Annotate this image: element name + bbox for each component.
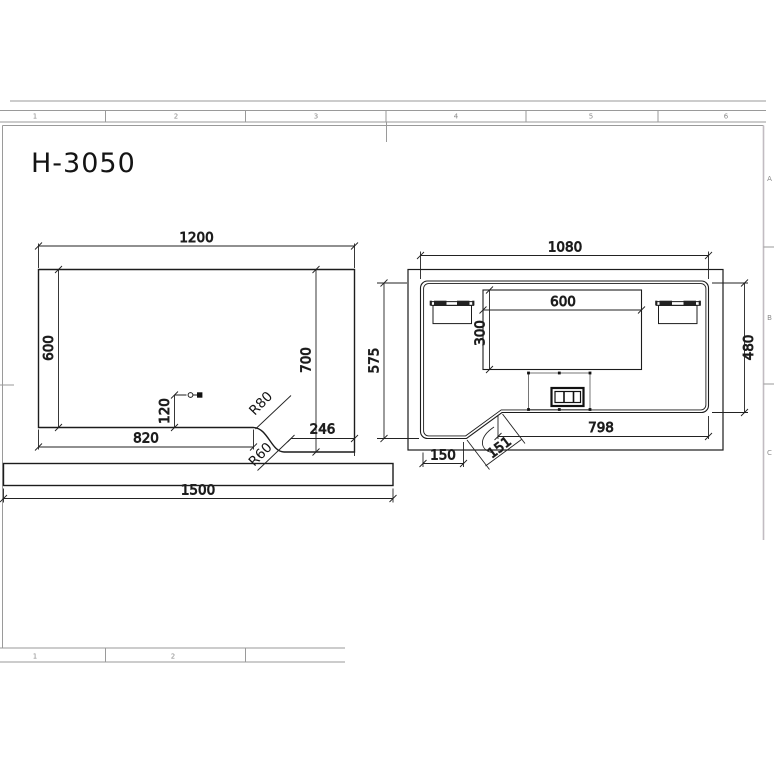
clamp-cap-icon bbox=[430, 301, 432, 306]
svg-text:700: 700 bbox=[299, 347, 315, 373]
right-clamp-accessory bbox=[655, 301, 701, 324]
svg-text:600: 600 bbox=[550, 294, 576, 310]
radius-callouts: R80 R60 bbox=[246, 389, 291, 471]
svg-text:300: 300 bbox=[473, 320, 489, 346]
dim-plan-bottom-width: 798 bbox=[495, 416, 713, 440]
grommet-plug-icon bbox=[197, 392, 202, 397]
top-zone-1: 1 bbox=[33, 113, 37, 121]
bottom-zone-2: 2 bbox=[171, 653, 175, 661]
svg-text:1200: 1200 bbox=[179, 230, 213, 246]
dim-front-bottom-right-width: 246 bbox=[288, 422, 359, 457]
clamp-body bbox=[659, 305, 698, 323]
svg-text:600: 600 bbox=[41, 335, 57, 361]
svg-text:150: 150 bbox=[430, 448, 456, 464]
socket-module bbox=[527, 372, 591, 411]
top-zone-2: 2 bbox=[174, 113, 178, 121]
clamp-cap-icon bbox=[699, 301, 701, 306]
grommet-detail bbox=[175, 392, 203, 397]
svg-text:1500: 1500 bbox=[181, 483, 215, 499]
right-zone-b: B bbox=[767, 314, 772, 322]
svg-text:1080: 1080 bbox=[548, 240, 582, 256]
dim-front-overall-width: 1200 bbox=[35, 230, 358, 268]
svg-text:120: 120 bbox=[157, 398, 173, 424]
cad-drawing-sheet: 1 2 3 4 5 6 1 2 A B C H-3050 1200 bbox=[0, 0, 774, 774]
clamp-cap-icon bbox=[655, 301, 657, 306]
dim-tray-width: 600 bbox=[480, 294, 646, 314]
dim-front-bottom-left-width: 820 bbox=[35, 430, 257, 451]
svg-text:575: 575 bbox=[367, 348, 383, 374]
drawing-title: H-3050 bbox=[31, 148, 136, 179]
drawing-canvas: 1 2 3 4 5 6 1 2 A B C H-3050 1200 bbox=[0, 0, 774, 774]
clamp-body bbox=[433, 305, 472, 323]
dim-plan-left-depth: 575 bbox=[367, 280, 420, 443]
radius-bottom-label: R60 bbox=[246, 440, 276, 470]
clamp-block-icon bbox=[684, 301, 697, 305]
left-clamp-accessory bbox=[430, 301, 475, 324]
svg-text:820: 820 bbox=[133, 431, 159, 447]
svg-text:480: 480 bbox=[741, 335, 757, 361]
svg-text:246: 246 bbox=[310, 422, 336, 438]
bottom-zone-1: 1 bbox=[33, 653, 37, 661]
dim-front-left-height: 600 bbox=[41, 266, 62, 431]
socket-inner bbox=[555, 392, 581, 403]
plank-view: 1500 bbox=[0, 464, 397, 503]
right-zone-c: C bbox=[767, 449, 772, 457]
right-zone-a: A bbox=[767, 175, 772, 183]
dim-plan-overall-width: 1080 bbox=[417, 240, 712, 280]
front-view: 1200 600 700 120 bbox=[35, 230, 358, 471]
top-zone-3: 3 bbox=[314, 113, 318, 121]
plan-view: 1080 600 300 575 bbox=[367, 240, 758, 470]
dim-plan-right-depth: 480 bbox=[712, 280, 757, 417]
clamp-block-icon bbox=[660, 301, 673, 305]
top-zone-6: 6 bbox=[724, 113, 729, 121]
svg-text:151: 151 bbox=[484, 434, 514, 462]
dim-notch-width: 150 bbox=[420, 442, 468, 467]
zone-labels: 1 2 3 4 5 6 1 2 A B C bbox=[33, 113, 772, 661]
grommet-circle-icon bbox=[188, 393, 193, 398]
svg-text:798: 798 bbox=[588, 420, 614, 436]
clamp-block-icon bbox=[457, 301, 470, 305]
top-zone-4: 4 bbox=[454, 113, 459, 121]
socket-frame bbox=[552, 388, 584, 406]
dim-front-grommet-offset: 120 bbox=[157, 392, 178, 432]
top-zone-5: 5 bbox=[589, 113, 593, 121]
clamp-cap-icon bbox=[472, 301, 474, 306]
clamp-block-icon bbox=[434, 301, 447, 305]
dim-notch-edge: 151 bbox=[467, 414, 525, 470]
sheet-frame bbox=[0, 101, 774, 662]
